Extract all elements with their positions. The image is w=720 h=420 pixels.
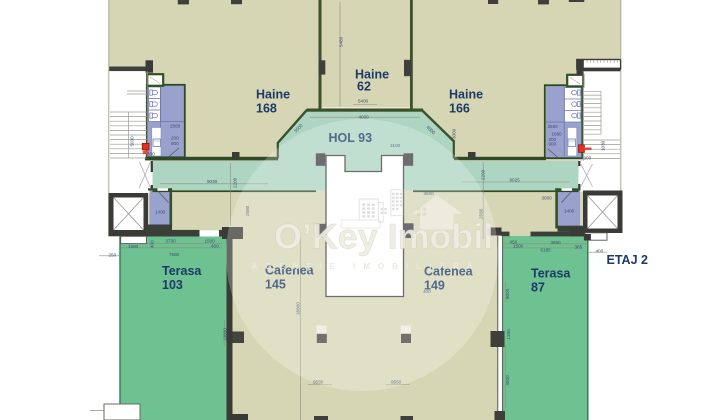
svg-text:300: 300 <box>584 155 592 160</box>
svg-text:Terasa: Terasa <box>531 267 571 281</box>
svg-text:7580: 7580 <box>169 252 180 257</box>
svg-text:1680: 1680 <box>128 244 139 249</box>
svg-text:3850: 3850 <box>551 240 562 245</box>
svg-text:5480: 5480 <box>339 36 344 47</box>
svg-text:1030: 1030 <box>601 140 606 151</box>
svg-text:1400: 1400 <box>155 210 166 215</box>
svg-text:2200: 2200 <box>481 169 486 180</box>
svg-text:3000: 3000 <box>542 196 553 201</box>
svg-text:900: 900 <box>549 142 557 147</box>
svg-text:O’Key Imobil: O’Key Imobil <box>274 217 493 257</box>
svg-text:1500: 1500 <box>513 244 524 249</box>
svg-text:6185: 6185 <box>541 247 552 252</box>
svg-text:13800: 13800 <box>223 328 228 341</box>
svg-text:Haine: Haine <box>256 88 290 102</box>
svg-text:1400: 1400 <box>564 209 575 214</box>
svg-text:5400: 5400 <box>358 99 369 104</box>
svg-text:Haine: Haine <box>449 88 483 102</box>
svg-text:900: 900 <box>171 141 179 146</box>
svg-text:9030: 9030 <box>207 179 218 184</box>
svg-text:2560: 2560 <box>170 124 181 129</box>
svg-text:1680: 1680 <box>552 131 563 136</box>
svg-text:166: 166 <box>449 102 470 116</box>
svg-text:400: 400 <box>211 243 219 248</box>
svg-text:3730: 3730 <box>166 239 177 244</box>
svg-text:3000: 3000 <box>452 128 457 139</box>
svg-text:400: 400 <box>150 240 155 248</box>
svg-text:9025: 9025 <box>510 178 521 183</box>
svg-text:300: 300 <box>147 151 155 156</box>
svg-text:2560: 2560 <box>548 124 559 129</box>
svg-text:2200: 2200 <box>233 177 238 188</box>
svg-text:8000: 8000 <box>505 288 510 299</box>
svg-text:ETAJ 2: ETAJ 2 <box>607 253 648 267</box>
svg-text:168: 168 <box>256 102 277 116</box>
svg-text:Terasa: Terasa <box>162 264 202 278</box>
svg-text:4800: 4800 <box>505 375 510 386</box>
svg-text:250: 250 <box>109 253 117 258</box>
svg-text:200: 200 <box>171 136 179 141</box>
svg-text:5030: 5030 <box>130 136 135 147</box>
svg-text:4000: 4000 <box>359 114 370 119</box>
svg-text:87: 87 <box>531 281 545 295</box>
svg-text:103: 103 <box>162 278 183 292</box>
svg-text:400: 400 <box>596 249 604 254</box>
svg-text:AGENŢIE IMOBILIARĂ: AGENŢIE IMOBILIARĂ <box>251 262 480 271</box>
svg-text:1380: 1380 <box>506 329 511 340</box>
svg-text:385: 385 <box>575 244 583 249</box>
svg-text:62: 62 <box>357 80 371 94</box>
